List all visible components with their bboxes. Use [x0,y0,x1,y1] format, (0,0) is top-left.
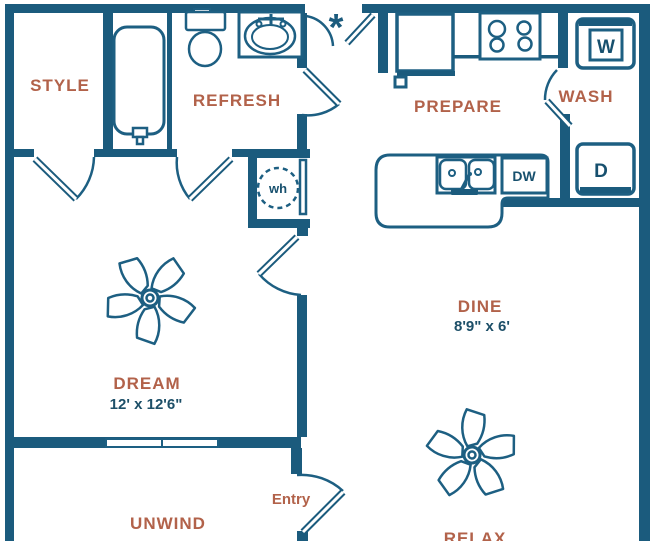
unwind-label: UNWIND [130,514,206,533]
entry-label: Entry [272,491,311,508]
refresh-side-door [302,70,339,115]
dryer: D [577,144,634,194]
dine-dimensions: 8'9" x 6' [454,318,510,335]
kitchen-island: DW [376,155,548,227]
dishwasher-label: DW [512,168,536,184]
ceiling-fan-relax [405,390,537,521]
dine-label: DINE [458,297,503,316]
stove [480,13,540,59]
bathroom-sink [239,12,302,57]
style-label: STYLE [30,76,90,95]
water-heater-closet-door [300,160,306,214]
wash-label: WASH [559,87,614,106]
floor-plan: wh DW [0,0,650,541]
water-heater-label: wh [268,181,287,196]
water-heater: wh [258,168,298,208]
dishwasher: DW [502,158,547,193]
washer: W [577,19,634,68]
walls [5,4,650,541]
kitchen-sink [437,157,495,195]
dream-door [259,237,301,295]
bathtub [114,27,164,144]
ceiling-fan-dream [93,241,206,356]
dream-dimensions: 12' x 12'6" [110,396,183,413]
refresh-hall-door [177,157,231,199]
prepare-label: PREPARE [414,97,502,116]
washer-label: W [597,37,615,58]
window [106,439,218,447]
relax-label: RELAX [444,529,507,541]
toilet [186,9,225,66]
dryer-label: D [594,161,608,182]
dream-label: DREAM [113,374,180,393]
floor-plan-svg: wh DW [0,0,650,541]
style-closet-door [35,157,94,199]
refrigerator [395,14,455,87]
refresh-label: REFRESH [193,91,281,110]
note-asterisk: * [329,7,344,49]
